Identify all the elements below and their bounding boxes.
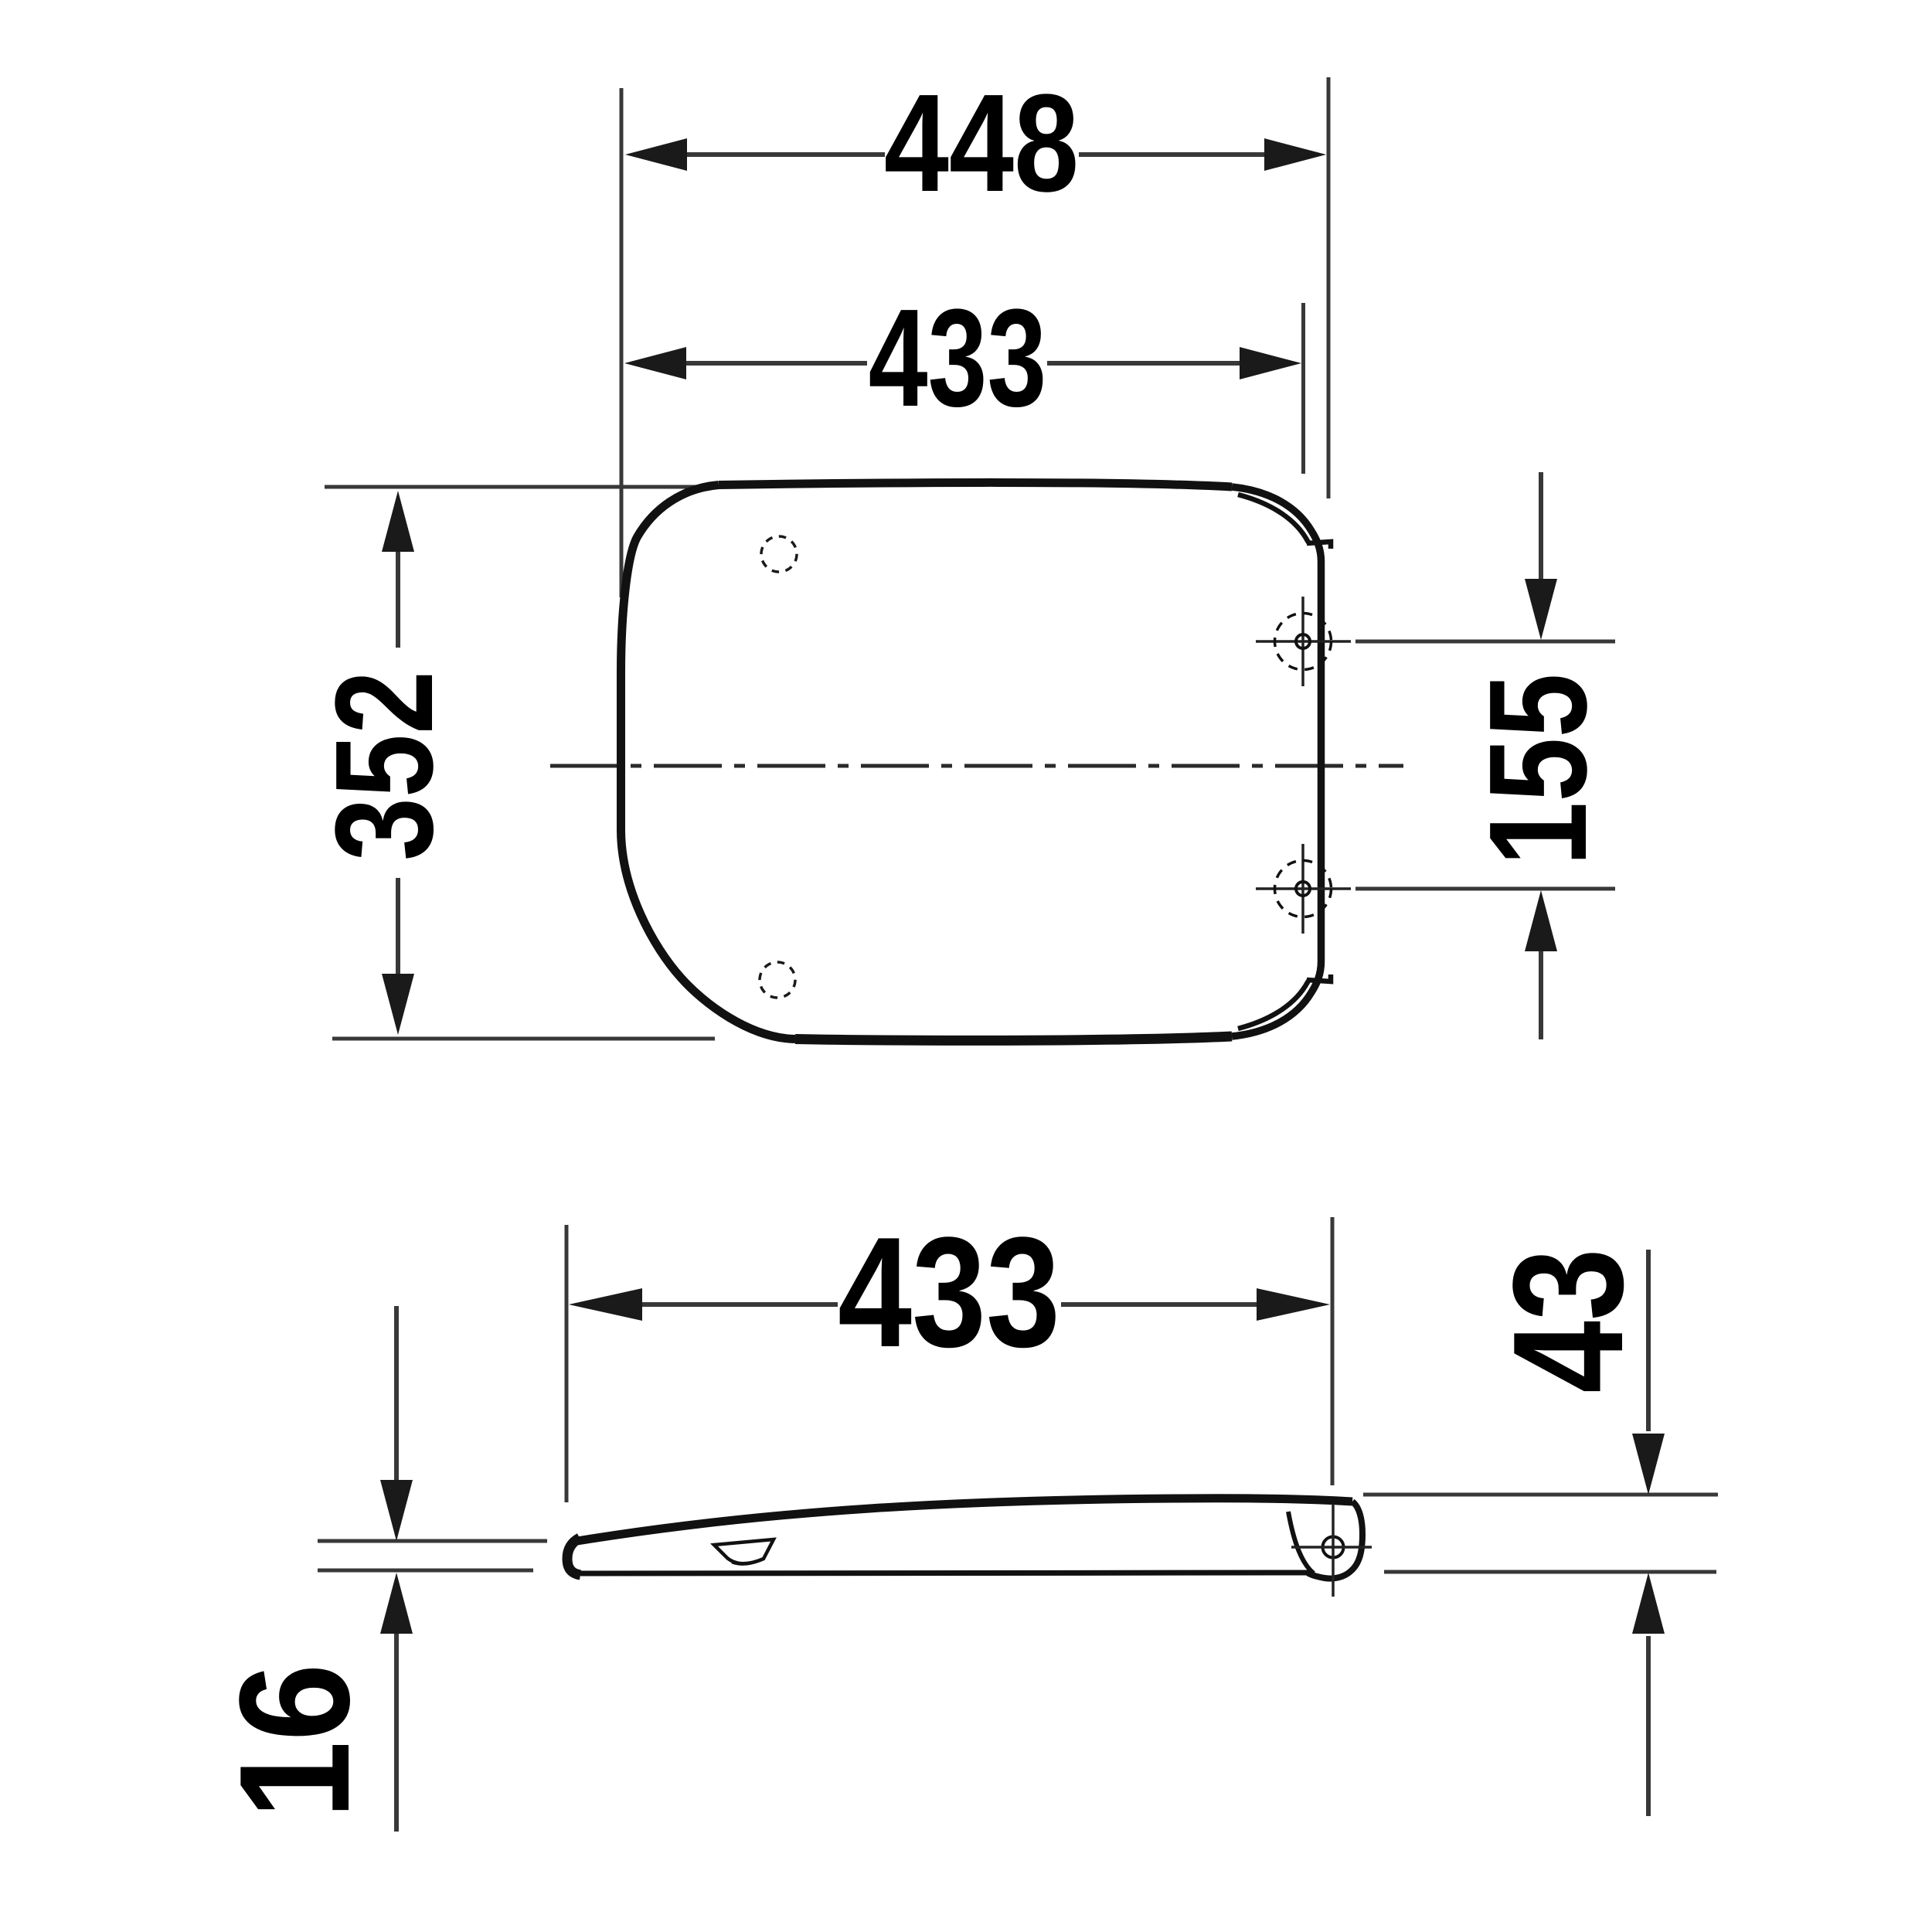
svg-text:352: 352 — [306, 671, 461, 861]
svg-text:16: 16 — [206, 1664, 382, 1819]
svg-text:433: 433 — [838, 1204, 1060, 1379]
svg-text:433: 433 — [869, 281, 1047, 436]
svg-text:448: 448 — [884, 66, 1079, 221]
svg-text:155: 155 — [1461, 673, 1616, 866]
svg-text:43: 43 — [1480, 1248, 1655, 1393]
